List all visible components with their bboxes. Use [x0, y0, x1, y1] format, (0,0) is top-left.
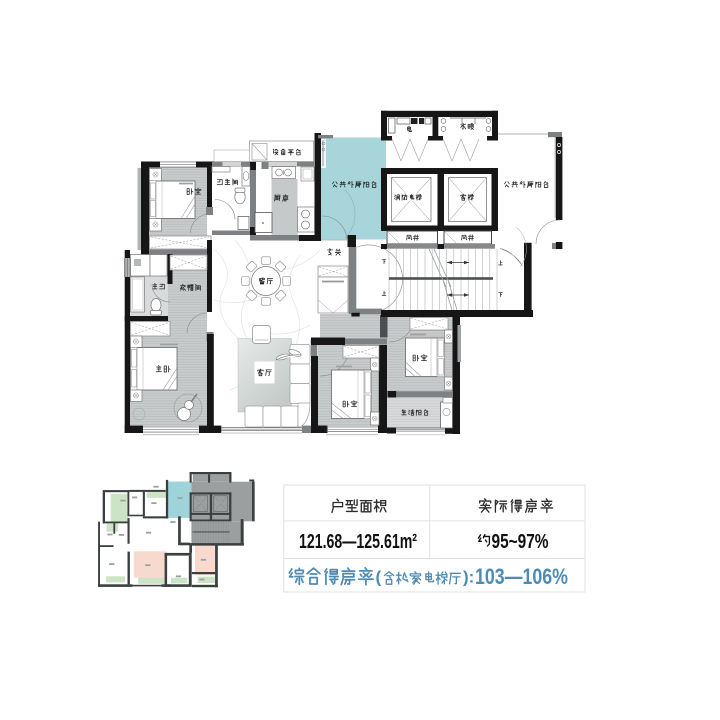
svg-text:103—106%: 103—106% — [475, 564, 568, 589]
svg-text:121.68—125.61m²: 121.68—125.61m² — [299, 531, 417, 553]
svg-text:):: ): — [463, 568, 474, 587]
svg-text:(: ( — [376, 568, 382, 587]
svg-text:95~97%: 95~97% — [492, 531, 549, 553]
